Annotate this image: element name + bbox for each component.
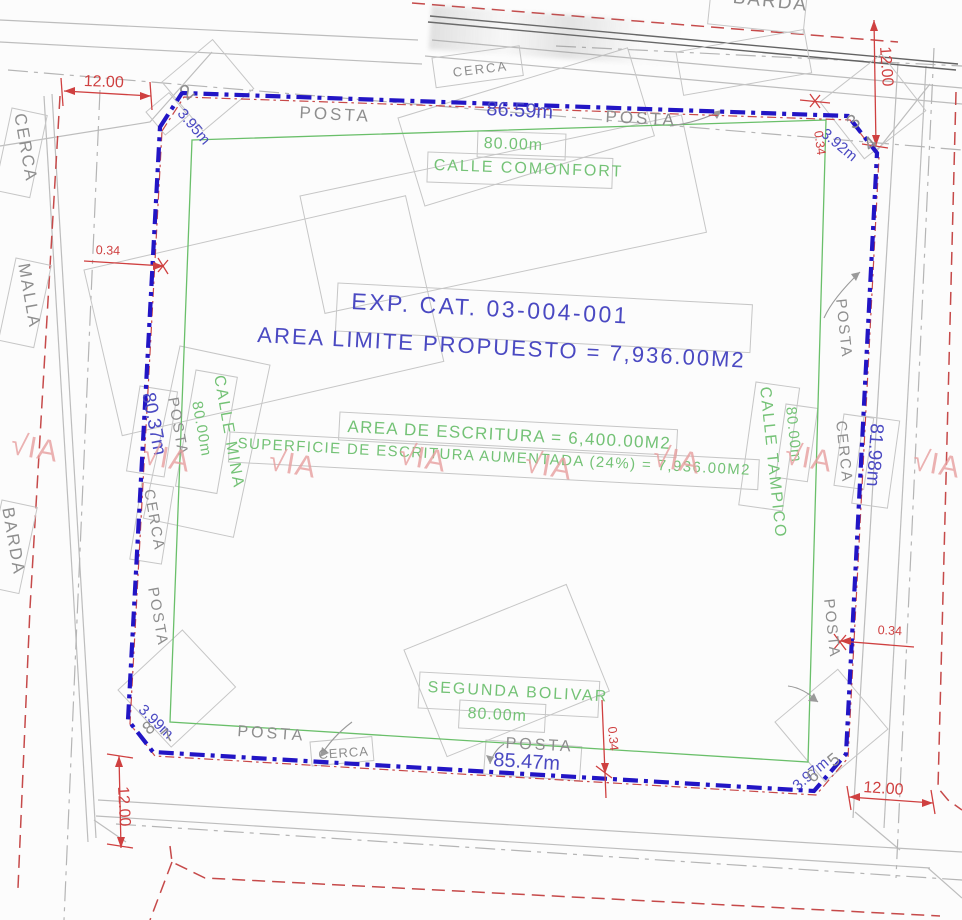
street-width-south: 80.00m	[467, 706, 527, 725]
fence-label-cerca-bottom: CERCA	[318, 744, 369, 760]
fence-label-posta-top-right: POSTA	[605, 108, 677, 129]
dim-fence-offset-right: 0.34	[877, 624, 902, 638]
boundary-length-south: 85.47m	[493, 750, 561, 774]
dim-street-width-bottom-right: 12.00	[863, 780, 904, 799]
boundary-length-east: 81.98m	[863, 423, 886, 488]
dim-fence-offset-top-right: 0.34	[812, 130, 828, 156]
street-width-north: 80.00m	[483, 136, 543, 154]
dim-street-width-top-right: 12.00	[876, 46, 895, 87]
dim-fence-offset-bottom: 0.34	[606, 726, 621, 751]
dim-street-width-top-left: 12.00	[83, 74, 124, 91]
cadastral-survey-plan: POSTA POSTA CERCA CERCA MALLA BARDA BARD…	[0, 0, 962, 920]
boundary-length-north: 86.59m	[486, 99, 554, 122]
fence-label-posta-top-left: POSTA	[299, 104, 371, 125]
dim-street-width-bottom-left: 12.00	[114, 786, 132, 827]
dim-fence-offset-left: 0.34	[96, 244, 121, 257]
